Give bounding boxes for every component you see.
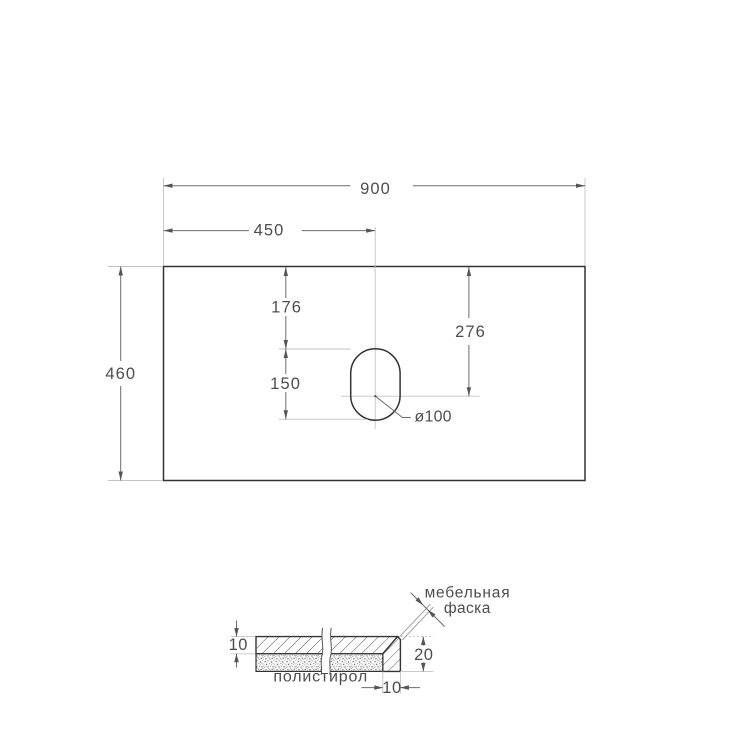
svg-text:450: 450 xyxy=(254,222,285,240)
svg-text:176: 176 xyxy=(271,298,302,316)
svg-text:10: 10 xyxy=(229,636,248,654)
svg-text:10: 10 xyxy=(382,679,401,697)
svg-text:фаска: фаска xyxy=(444,600,491,617)
svg-text:20: 20 xyxy=(414,646,433,664)
svg-text:ø100: ø100 xyxy=(415,408,452,425)
svg-text:150: 150 xyxy=(270,375,301,393)
svg-text:460: 460 xyxy=(105,365,136,383)
svg-text:полистирол: полистирол xyxy=(273,669,368,686)
svg-text:900: 900 xyxy=(360,180,391,198)
svg-text:276: 276 xyxy=(455,323,486,341)
